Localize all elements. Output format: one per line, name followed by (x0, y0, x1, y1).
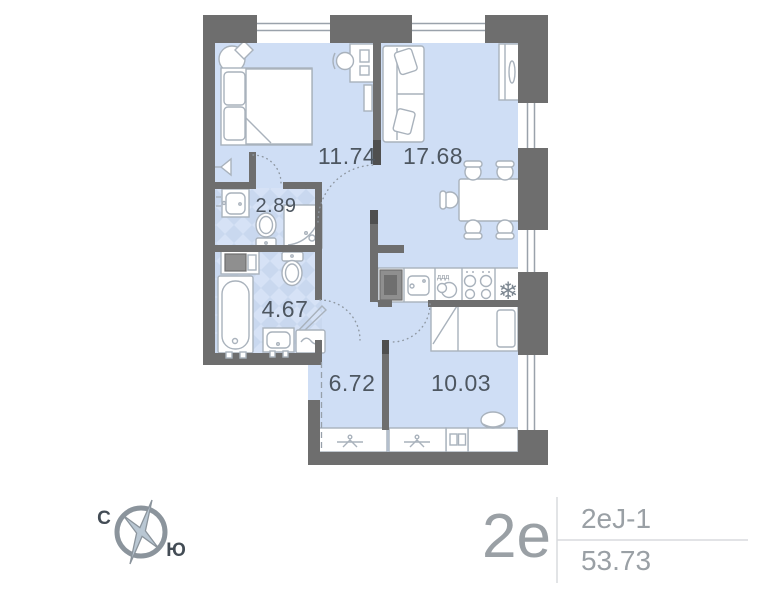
washing-machine-icon (221, 251, 259, 274)
stool-icon (496, 220, 514, 239)
room-area-label: 2.89 (256, 195, 297, 217)
bathtub-icon (218, 276, 253, 353)
compass-south-label: Ю (166, 540, 186, 561)
room-area-label: 6.72 (329, 370, 376, 396)
window (518, 355, 548, 430)
window (518, 230, 548, 272)
tub-foot (240, 352, 246, 358)
bookshelf-icon (446, 428, 468, 452)
floor-plan-page: ддд ❄ (0, 0, 760, 600)
window (257, 15, 330, 43)
unit-type: 2е (482, 502, 551, 571)
sink-leg (283, 351, 288, 357)
tub-foot (226, 352, 232, 358)
stool-icon (464, 161, 482, 180)
room-area-label: 17.68 (403, 143, 463, 169)
bathroom-sink-icon (263, 328, 294, 352)
oven-icon (380, 270, 402, 300)
room-area-label: 11.74 (318, 143, 376, 169)
kitchen-sink-icon (408, 276, 429, 295)
stool-icon (496, 161, 514, 180)
stool-icon (464, 220, 482, 239)
compass-north-label: С (97, 508, 111, 529)
closet-icon (313, 428, 387, 452)
unit-layout-code: 2еJ-1 (581, 503, 651, 534)
unit-card: 2е 2еJ-1 53.73 (482, 497, 748, 583)
sofa-icon (383, 46, 424, 142)
window (412, 15, 485, 43)
kitchen-counter: ддд ❄ (378, 268, 522, 305)
double-bed-icon (221, 68, 312, 145)
shelf-icon (364, 85, 372, 111)
desk-chair-icon (337, 53, 354, 70)
compass: С Ю (97, 500, 186, 564)
sink-leg (270, 351, 275, 357)
dish-marks: ддд (437, 274, 449, 281)
apartment-floor-plan: ддд ❄ (0, 0, 760, 600)
closet-icon (389, 428, 446, 452)
room-area-label: 4.67 (262, 296, 309, 322)
window (518, 103, 548, 148)
stool-icon (440, 191, 458, 209)
toilet-icon (256, 213, 276, 248)
wardrobe-icon (499, 44, 520, 100)
room-area-label: 10.03 (431, 370, 491, 396)
single-bed-icon (431, 306, 518, 351)
unit-area: 53.73 (581, 545, 651, 576)
toilet-icon (282, 252, 303, 286)
